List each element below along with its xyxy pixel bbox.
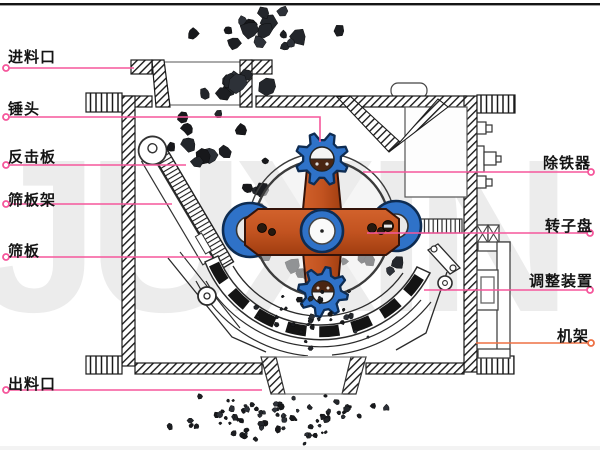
discharge-spray-particles [254,407,259,411]
chamber-rocks [391,257,403,269]
discharge-spray-particles [250,402,255,407]
leader-ring-machine-frame [588,340,594,346]
diagram-stage: JUXIN [0,0,600,450]
discharge-spray-particles [227,399,230,402]
discharge-spray-particles [337,411,341,415]
feed-falling-rocks [280,30,287,38]
sieve-drip-particles [281,295,284,298]
discharge-spray-particles [303,442,306,445]
discharge-spray-particles [194,424,199,429]
impact-stream-rocks [235,123,247,135]
chamber-rocks [387,267,395,276]
sieve-drip-particles [317,317,320,321]
bracket-web [497,242,510,358]
feed-hopper-flange-left [131,60,152,74]
discharge-spray-particles [296,409,299,413]
sieve-drip-particles [330,318,333,321]
discharge-spray-particles [244,428,250,433]
flange-top-left [86,93,122,112]
discharge-spray-particles [229,405,235,411]
discharge-spray-particles [292,396,296,400]
sieve-drip-particles [367,336,369,339]
discharge-spray-particles [272,408,278,413]
discharge-hopper [261,356,366,395]
discharge-spray-particles [220,410,224,414]
discharge-spray-particles [370,403,376,408]
link-arm-hole-bottom [450,265,456,271]
sieve-drip-particles [296,297,302,302]
discharge-spray-particles [231,431,236,436]
bottom-wall-right [366,363,464,374]
sieve-drip-particles [299,330,303,334]
wall-bolts [477,122,501,188]
flange-bottom-right [477,356,514,374]
feed-hopper-flange-right [251,60,272,74]
discharge-spray-particles [320,414,323,416]
link-arm-hole-top [431,246,437,252]
leader-ring-impact-plate [3,162,9,168]
discharge-spray-particles [304,433,308,437]
impact-stream-rocks [167,142,175,151]
leader-ring-adjusting-device [587,287,593,293]
discharge-spray-particles [232,399,235,401]
leader-ring-rotor-disc [587,230,593,236]
feed-falling-rocks [334,25,344,36]
discharge-spray-particles [318,424,322,427]
discharge-spray-particles [308,424,314,429]
discharge-spray-particles [282,417,287,422]
sieve-drip-particles [320,290,324,293]
sieve-drip-particles [344,315,349,320]
sieve-drip-particles [342,308,345,311]
bottom-wall-left [135,363,262,374]
discharge-spray-particles [321,432,323,434]
discharge-spray-particles [327,412,330,416]
leader-ring-screen-frame [3,201,9,207]
discharge-spray-particles [341,415,345,419]
discharge-spray-particles [219,422,222,425]
discharge-spray-particles [324,431,327,434]
sieve-drip-particles [304,340,307,343]
feed-falling-rocks [258,23,273,38]
impact-stream-rocks [242,184,253,193]
impact-stream-rocks [219,145,231,158]
feed-falling-rocks [189,28,200,40]
feed-falling-rocks [257,7,269,19]
top-border-line [0,3,600,5]
bottom-edge-strip [0,446,600,450]
leader-ring-discharge-outlet [3,387,9,393]
feed-falling-rocks [227,38,241,50]
screen-pivot-bolt-hole [204,293,210,299]
iron-remover-box [405,107,467,197]
adjusting-device-assembly [477,225,510,358]
discharge-spray-particles [333,400,339,405]
impact-plate-ladder [154,149,234,269]
discharge-spray-particles [316,419,319,423]
sieve-drip-particles [301,304,303,307]
flange-bottom-left [86,356,122,374]
leader-ring-iron-remover [588,169,594,175]
rotor-hub [301,210,343,252]
discharge-spray-particles [224,416,227,420]
crusher-diagram-canvas [0,0,600,450]
sieve-drip-particles [328,311,333,316]
discharge-spray-particles [275,426,280,434]
sieve-drip-particles [254,305,259,310]
leader-line-hammer-head [6,117,320,142]
hopper-rocks [259,78,276,96]
discharge-spray-particles [253,437,258,442]
flange-top-right [477,95,515,113]
feed-falling-rocks [277,6,288,16]
impact-stream-rocks [262,158,269,164]
discharge-spray-particles [307,404,312,409]
bracket-bottom-flange [478,349,510,358]
discharge-spray-particles [229,422,232,425]
discharge-spray-particles [167,423,172,429]
discharge-spray-particles [239,418,244,423]
sieve-drip-particles [284,307,287,311]
impact-stream-rocks [181,138,195,153]
discharge-spray-particles [189,423,194,427]
discharge-spray-particles [187,418,194,423]
discharge-spray-particles [259,426,264,431]
feed-falling-rocks [224,27,232,34]
leader-ring-screen-plate [3,254,9,260]
link-bolt-hole [443,281,448,286]
leader-ring-feed-inlet [3,65,9,71]
impact-stream-rocks [180,123,192,135]
discharge-spray-particles [281,427,285,430]
left-wall [122,96,135,366]
discharge-spray-particles [357,414,362,419]
discharge-spray-particles [258,414,263,418]
discharge-spray-particles [383,404,389,410]
discharge-spray-particles [276,413,280,417]
sieve-drip-particles [348,313,353,319]
discharge-spray-particles [312,433,317,438]
discharge-spray-particles [197,394,202,400]
leader-ring-hammer-head [3,114,9,120]
